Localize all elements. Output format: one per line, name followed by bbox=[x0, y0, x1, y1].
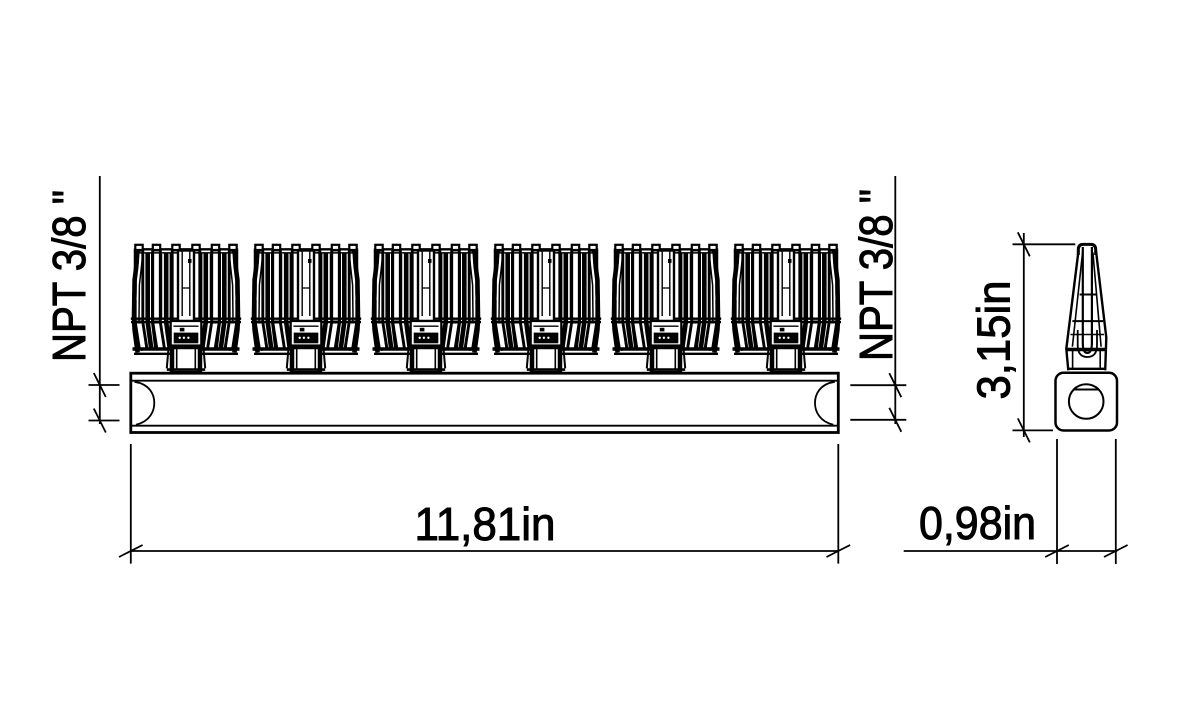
svg-text:0,98in: 0,98in bbox=[919, 497, 1036, 549]
svg-text:NPT 3/8 ": NPT 3/8 " bbox=[43, 190, 95, 362]
svg-text:NPT 3/8 ": NPT 3/8 " bbox=[850, 189, 902, 361]
svg-text:3,15in: 3,15in bbox=[968, 281, 1020, 400]
svg-text:11,81in: 11,81in bbox=[415, 498, 556, 550]
